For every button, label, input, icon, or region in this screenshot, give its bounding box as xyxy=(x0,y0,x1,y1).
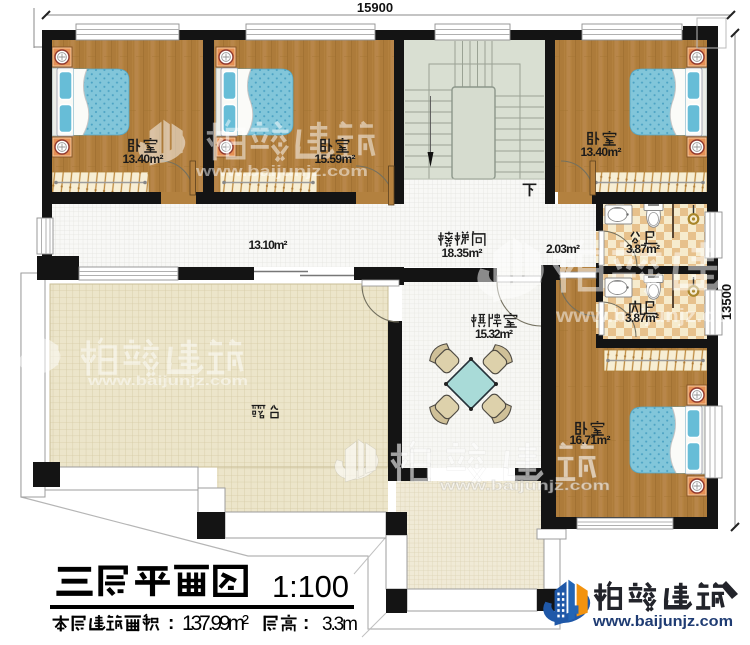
svg-text:16.71m²: 16.71m² xyxy=(570,433,611,447)
svg-text:15900: 15900 xyxy=(357,0,393,15)
svg-text:www.baijunjz.com: www.baijunjz.com xyxy=(592,613,733,630)
svg-text:www.baijunjz.com: www.baijunjz.com xyxy=(439,478,610,493)
svg-text:1:100: 1:100 xyxy=(272,569,349,604)
svg-text:13500: 13500 xyxy=(719,284,734,320)
svg-text:13.40m²: 13.40m² xyxy=(123,152,164,166)
svg-text::: : xyxy=(303,613,309,634)
svg-text:15.32m²: 15.32m² xyxy=(475,327,513,341)
svg-text:3.3m: 3.3m xyxy=(322,614,358,635)
svg-text:3.87m²: 3.87m² xyxy=(626,242,660,256)
svg-text:137.99m²: 137.99m² xyxy=(182,612,249,635)
svg-text:www.baijunjz.com: www.baijunjz.com xyxy=(87,374,248,388)
svg-text:13.40m²: 13.40m² xyxy=(581,145,622,159)
svg-text:3.87m²: 3.87m² xyxy=(625,311,659,325)
svg-text:13.10m²: 13.10m² xyxy=(249,238,288,252)
svg-text:15.59m²: 15.59m² xyxy=(315,152,356,166)
svg-text::: : xyxy=(168,613,174,634)
svg-text:2.03m²: 2.03m² xyxy=(546,242,580,256)
svg-text:18.35m²: 18.35m² xyxy=(442,246,483,260)
